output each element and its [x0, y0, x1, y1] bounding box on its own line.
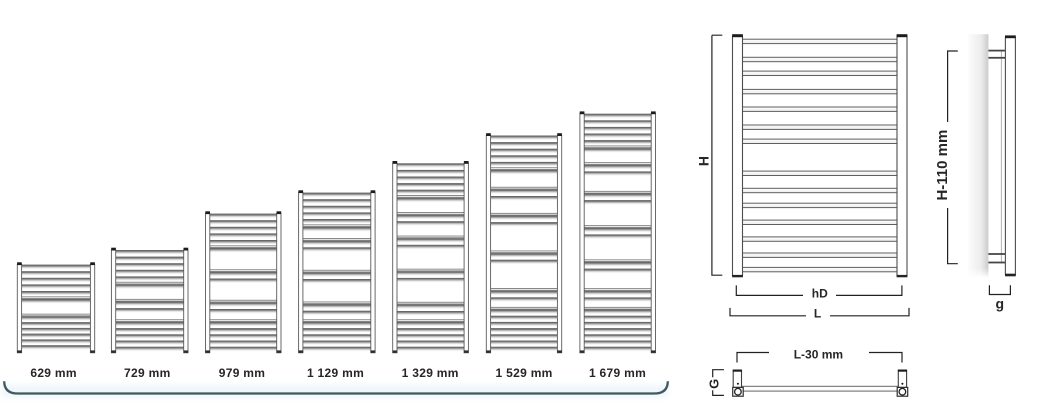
svg-text:G: G — [706, 379, 721, 389]
svg-text:629 mm: 629 mm — [30, 366, 77, 380]
svg-text:1 529 mm: 1 529 mm — [496, 366, 553, 380]
svg-text:1 679 mm: 1 679 mm — [589, 366, 646, 380]
svg-text:H-110 mm: H-110 mm — [934, 130, 951, 201]
svg-text:hD: hD — [812, 287, 828, 301]
svg-text:1 329 mm: 1 329 mm — [402, 366, 459, 380]
svg-text:979 mm: 979 mm — [219, 366, 266, 380]
svg-text:1 129 mm: 1 129 mm — [307, 366, 364, 380]
svg-text:g: g — [996, 296, 1005, 312]
svg-text:H: H — [696, 156, 712, 166]
svg-text:L-30 mm: L-30 mm — [794, 348, 843, 362]
svg-text:L: L — [814, 306, 821, 320]
svg-text:729 mm: 729 mm — [124, 366, 171, 380]
